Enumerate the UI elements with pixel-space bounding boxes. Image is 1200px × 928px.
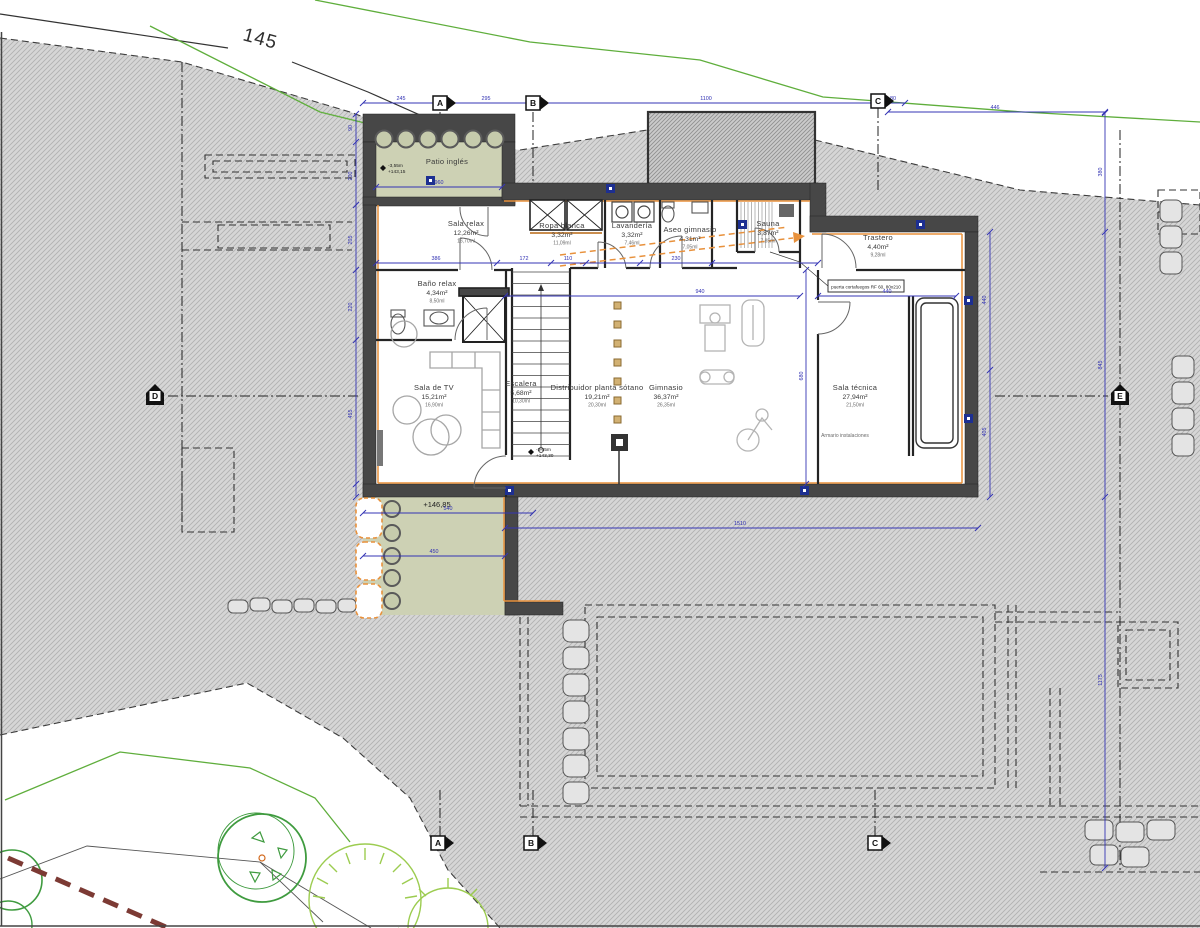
svg-text:C: C <box>872 838 878 848</box>
svg-text:D: D <box>152 391 158 401</box>
svg-text:A: A <box>437 98 443 108</box>
room-label-aseo-gimnasio: Aseo gimnasio <box>663 225 716 234</box>
room-area-sauna: 3,87m² <box>757 230 779 237</box>
svg-text:+143,30: +143,30 <box>536 453 554 459</box>
section-marker-a-0: A <box>433 96 456 110</box>
floor-plan-drawing: 145 <box>0 0 1200 928</box>
svg-text:-3,55m: -3,55m <box>536 447 551 453</box>
dim-label-19: 450 <box>430 549 439 555</box>
dim-label-21: 405 <box>982 428 988 437</box>
dim-label-6: 200 <box>348 172 354 181</box>
dim-label-4: 446 <box>991 105 1000 111</box>
room-area-ropa-blanca: 3,32m² <box>551 232 573 239</box>
room-perimeter-trastero: 9,28ml <box>870 253 885 259</box>
room-area-gimnasio: 36,37m² <box>654 394 680 401</box>
room-perimeter-distribuidor: 20,30ml <box>588 403 606 409</box>
svg-text:A: A <box>435 838 441 848</box>
svg-text:+143,15: +143,15 <box>388 169 406 175</box>
room-area-bano-relax: 4,34m² <box>426 290 448 297</box>
room-area-lavanderia: 3,32m² <box>621 232 643 239</box>
room-perimeter-gimnasio: 26,35ml <box>657 403 675 409</box>
dim-label-13: 110 <box>564 256 573 262</box>
room-perimeter-sala-relax: 16,70ml <box>457 239 475 245</box>
room-perimeter-sauna: 7,85ml <box>760 239 775 245</box>
room-area-sala-relax: 12,26m² <box>454 230 480 237</box>
room-area-distribuidor: 19,21m² <box>585 394 611 401</box>
room-label-sala-tecnica: Sala técnica <box>833 383 878 392</box>
room-label-distribuidor: Distribuidor planta sótano <box>551 383 644 392</box>
planters <box>356 498 382 618</box>
svg-text:B: B <box>530 98 536 108</box>
room-label-escalera: Escalera <box>505 379 537 388</box>
dim-label-16: 440 <box>883 289 892 295</box>
section-marker-b-1: B <box>526 96 549 110</box>
dim-label-10: 960 <box>435 180 444 186</box>
dim-label-9: 455 <box>348 410 354 419</box>
room-area-sala-tecnica: 27,94m² <box>843 394 869 401</box>
dim-label-18: 1510 <box>734 521 746 527</box>
dim-label-24: 1175 <box>1098 674 1104 686</box>
room-perimeter-lavanderia: 7,46ml <box>624 241 639 247</box>
room-label-patio-ingles: Patio inglés <box>426 157 468 166</box>
dim-label-11: 386 <box>432 256 441 262</box>
dim-label-15: 940 <box>696 289 705 295</box>
room-perimeter-sala-tv: 16,90ml <box>425 403 443 409</box>
room-perimeter-aseo-gimnasio: 7,05ml <box>682 245 697 251</box>
contour-label-145: 145 <box>241 25 280 54</box>
dim-label-17: 540 <box>444 506 453 512</box>
tv-unit <box>377 430 383 466</box>
room-area-escalera: 5,68m² <box>510 390 532 397</box>
room-label-lavanderia: Lavandería <box>612 221 653 230</box>
dim-label-5: 90 <box>348 125 354 131</box>
sauna-heater <box>779 204 794 217</box>
dim-label-20: 440 <box>982 296 988 305</box>
dim-label-2: 1100 <box>700 96 712 102</box>
floor-plan-svg: 145 <box>0 0 1200 928</box>
room-area-aseo-gimnasio: 4,31m² <box>679 236 701 243</box>
dim-label-8: 220 <box>348 303 354 312</box>
room-area-sala-tv: 15,21m² <box>422 394 448 401</box>
dim-label-7: 205 <box>348 236 354 245</box>
svg-text:-3,55m: -3,55m <box>388 163 403 169</box>
room-label-sala-relax: Sala relax <box>448 219 484 228</box>
dim-label-0: 245 <box>397 96 406 102</box>
room-label-sauna: Sauna <box>756 219 780 228</box>
boundary-line <box>8 858 168 928</box>
room-area-trastero: 4,40m² <box>867 244 889 251</box>
room-label-armario-instalaciones: Armario instalaciones <box>821 433 869 439</box>
dim-label-22: 380 <box>1098 168 1104 177</box>
room-label-trastero: Trastero <box>863 233 893 242</box>
room-perimeter-ropa-blanca: 11,09ml <box>553 241 570 247</box>
room-label-bano-relax: Baño relax <box>418 279 457 288</box>
svg-text:B: B <box>528 838 534 848</box>
dim-label-12: 172 <box>520 256 529 262</box>
dim-label-23: 845 <box>1098 361 1104 370</box>
room-label-gimnasio: Gimnasio <box>649 383 683 392</box>
dim-label-1: 295 <box>482 96 491 102</box>
room-perimeter-bano-relax: 8,50ml <box>429 299 444 305</box>
room-perimeter-escalera: 10,30ml <box>512 399 530 405</box>
dim-label-14: 230 <box>672 256 681 262</box>
room-perimeter-sala-tecnica: 21,50ml <box>846 403 864 409</box>
room-label-ropa-blanca: Ropa blanca <box>539 221 585 230</box>
upper-floor-projection <box>648 112 815 185</box>
dim-label-25: 680 <box>799 372 805 381</box>
svg-text:C: C <box>875 96 881 106</box>
svg-text:E: E <box>1117 391 1123 401</box>
vegetation <box>0 813 488 928</box>
room-label-sala-tv: Sala de TV <box>414 383 454 392</box>
